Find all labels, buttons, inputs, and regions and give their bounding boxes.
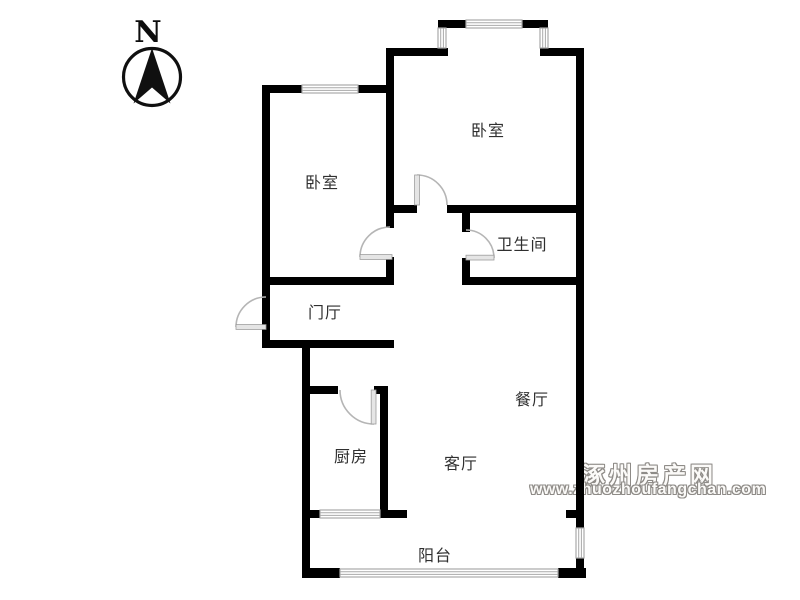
floor-plan-drawing [0,0,800,600]
bedroom-top-door [415,175,447,205]
kitchen-door [340,390,376,424]
room-label-bedroom-top: 卧室 [471,117,505,141]
compass-icon [124,48,181,106]
entry-door [236,297,266,329]
floor-plan-page: 涿州房产网 www.zhuozhoufangchan.com [0,0,800,600]
balcony-front-window [340,569,558,577]
bedroom-left-window [302,85,358,93]
compass-north-label: N [134,18,161,48]
room-label-bathroom: 卫生间 [496,231,547,255]
room-label-living: 客厅 [444,450,478,474]
kitchen-window [320,510,380,518]
room-label-balcony: 阳台 [418,542,452,566]
room-label-dining: 餐厅 [515,386,549,410]
bay-window-top [466,20,522,28]
room-label-bedroom-left: 卧室 [305,169,339,193]
balcony-side-window [576,528,584,558]
windows [302,20,584,577]
bathroom-door [466,230,494,260]
bay-window-right-return [540,28,548,48]
room-label-kitchen: 厨房 [334,443,368,467]
bedroom-left-door [360,227,392,259]
bay-window-left-return [438,28,446,48]
room-label-entry-hall: 门厅 [308,299,342,323]
